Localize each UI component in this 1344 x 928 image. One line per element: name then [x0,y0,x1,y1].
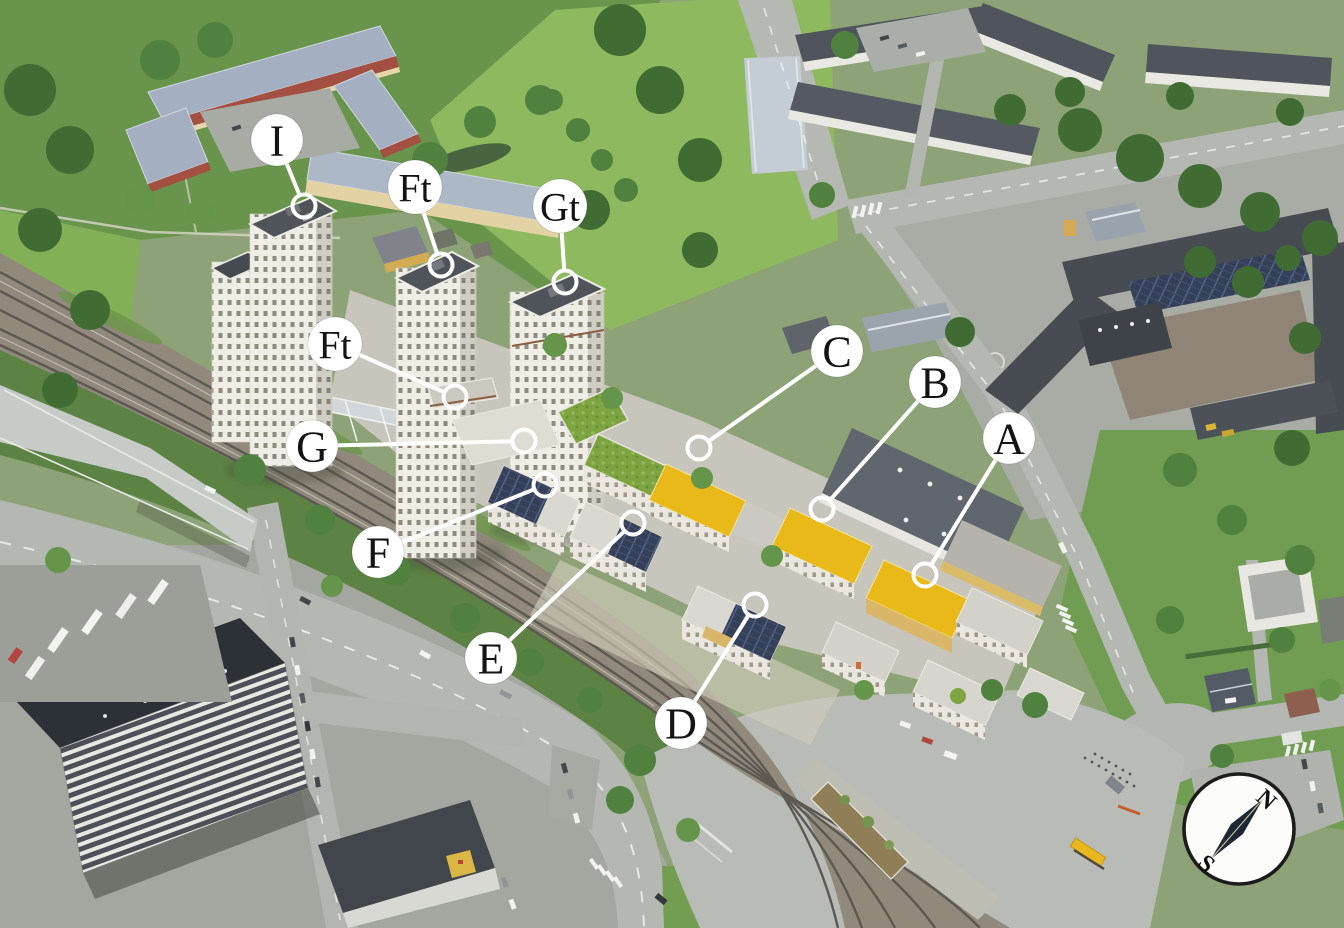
label-text-G: G [296,423,328,472]
label-text-I: I [270,117,285,166]
label-text-F: F [366,529,390,578]
label-text-Ft2: Ft [318,323,351,368]
leader-line-Gt [562,231,565,271]
aerial-figure: N S IFtGtFtGCBAFED [0,0,1344,928]
compass: N S [1184,774,1294,884]
haze-overlay [0,0,1344,928]
label-text-A: A [993,415,1025,464]
label-text-E: E [478,635,505,684]
label-text-Ft1: Ft [398,166,431,211]
label-text-Gt: Gt [540,185,580,230]
aerial-scene: N S IFtGtFtGCBAFED [0,0,1344,928]
label-text-C: C [822,328,851,377]
label-text-D: D [665,700,697,749]
label-text-B: B [920,359,949,408]
